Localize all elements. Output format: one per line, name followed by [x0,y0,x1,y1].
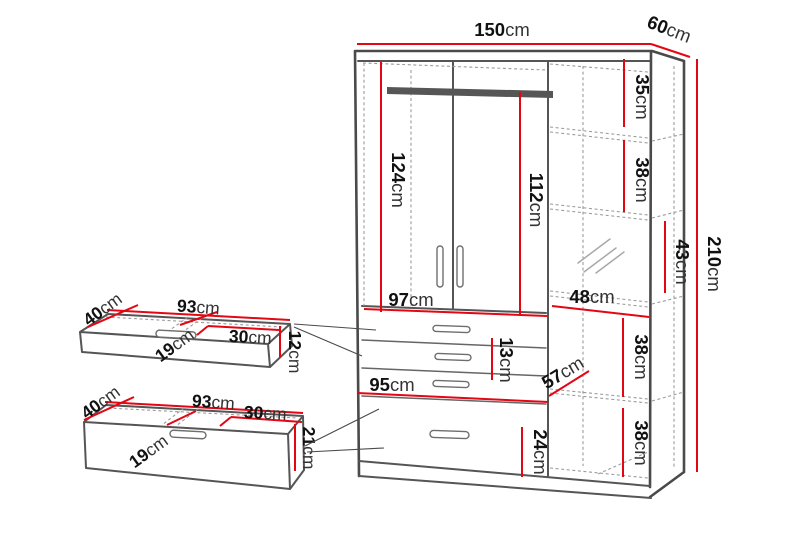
label-a-93: 93cm [176,296,220,319]
label-width: 150cm [474,19,530,40]
dim-line-48 [552,306,649,317]
dim-line-b-19 [167,411,196,425]
interior-hidden-edges [363,63,684,478]
right-door-handle [457,246,463,287]
label-24: 24cm [530,429,551,474]
label-38-mid: 38cm [631,334,652,379]
leader-small-drawer-to-row1 [294,324,376,330]
label-95: 95cm [369,374,414,395]
mirror-glass-icon [578,239,624,273]
label-124: 124cm [388,152,409,208]
label-b-21: 21cm [299,427,319,470]
detached-large-drawer: 40cm 93cm 19cm 30cm 21cm [77,381,319,489]
dim-line-depth [651,44,690,57]
label-a-12: 12cm [285,331,305,374]
label-112: 112cm [526,173,547,228]
label-height: 210cm [704,236,725,292]
label-a-30: 30cm [228,326,272,348]
left-door-handle [437,246,443,287]
wardrobe-plinth [359,461,651,498]
label-35: 35cm [632,74,653,119]
small-drawer-2-handle [435,353,471,360]
label-b-40: 40cm [77,381,123,422]
small-drawer-1-handle [433,325,470,332]
label-97: 97cm [388,289,433,310]
large-drawer-handle [430,430,469,438]
detached-small-drawer: 40cm 93cm 19cm 30cm 12cm [79,288,305,373]
hanging-rail [387,87,553,98]
label-38-top: 38cm [632,157,653,202]
large-drawer-slot-handle [170,430,206,439]
label-38-bottom: 38cm [631,420,652,465]
label-43: 43cm [672,239,693,284]
wardrobe-dimension-diagram: 150cm 60cm 210cm 124cm 112cm 97cm 35cm 3… [0,0,800,533]
label-b-19: 19cm [125,430,171,471]
label-b-30: 30cm [243,402,287,424]
label-depth: 60cm [644,11,694,47]
label-b-93: 93cm [191,391,235,414]
label-a-40: 40cm [79,288,125,329]
small-drawer-3-handle [433,380,469,387]
label-13: 13cm [496,337,517,382]
label-48: 48cm [569,286,614,307]
